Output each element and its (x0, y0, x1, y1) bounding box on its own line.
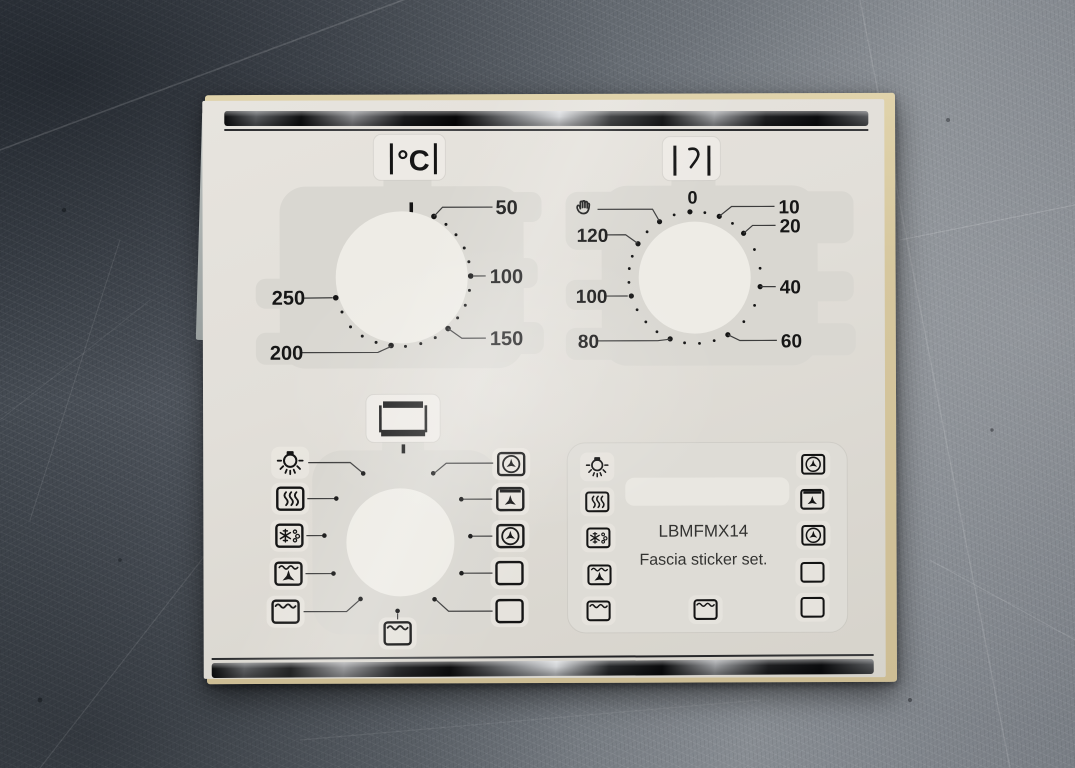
subtitle-text: Fascia sticker set. (639, 551, 767, 568)
temp-label-200: 200 (270, 343, 303, 365)
knob-hole (639, 221, 751, 333)
minute-minder-tab (662, 137, 720, 181)
temp-label-50: 50 (495, 197, 517, 219)
sticker-sheet: °C 50 (202, 99, 886, 679)
timer-dial-sticker: 0 10 20 40 60 80 100 120 (559, 129, 860, 380)
chrome-strip-top (224, 111, 868, 131)
timer-label-10: 10 (778, 197, 799, 218)
temperature-dial-sticker: °C 50 (249, 130, 550, 381)
knob-hole (336, 211, 468, 343)
metal-background: °C 50 (0, 0, 1075, 768)
chrome-strip-bottom (212, 654, 874, 678)
temp-label-150: 150 (490, 328, 523, 350)
timer-label-80: 80 (578, 332, 599, 353)
timer-label-0: 0 (687, 188, 697, 208)
model-text: LBMFMX14 (658, 521, 748, 540)
celsius-symbol: °C (397, 145, 430, 177)
timer-label-20: 20 (780, 216, 801, 237)
timer-label-60: 60 (781, 331, 802, 352)
knob-hole (346, 488, 454, 596)
timer-label-100: 100 (576, 287, 608, 308)
timer-label-120: 120 (577, 226, 609, 247)
info-panel-sticker: LBMFMX14 Fascia sticker set. (565, 439, 886, 650)
pointer-tick (410, 202, 414, 212)
temp-label-100: 100 (490, 266, 523, 288)
timer-label-40: 40 (780, 277, 801, 298)
temp-label-250: 250 (272, 288, 305, 310)
chrome-band (212, 659, 874, 678)
chrome-band (224, 111, 868, 126)
blank-sticker-band (625, 477, 789, 505)
function-dial-sticker (250, 392, 551, 653)
pointer-tick (402, 444, 406, 453)
